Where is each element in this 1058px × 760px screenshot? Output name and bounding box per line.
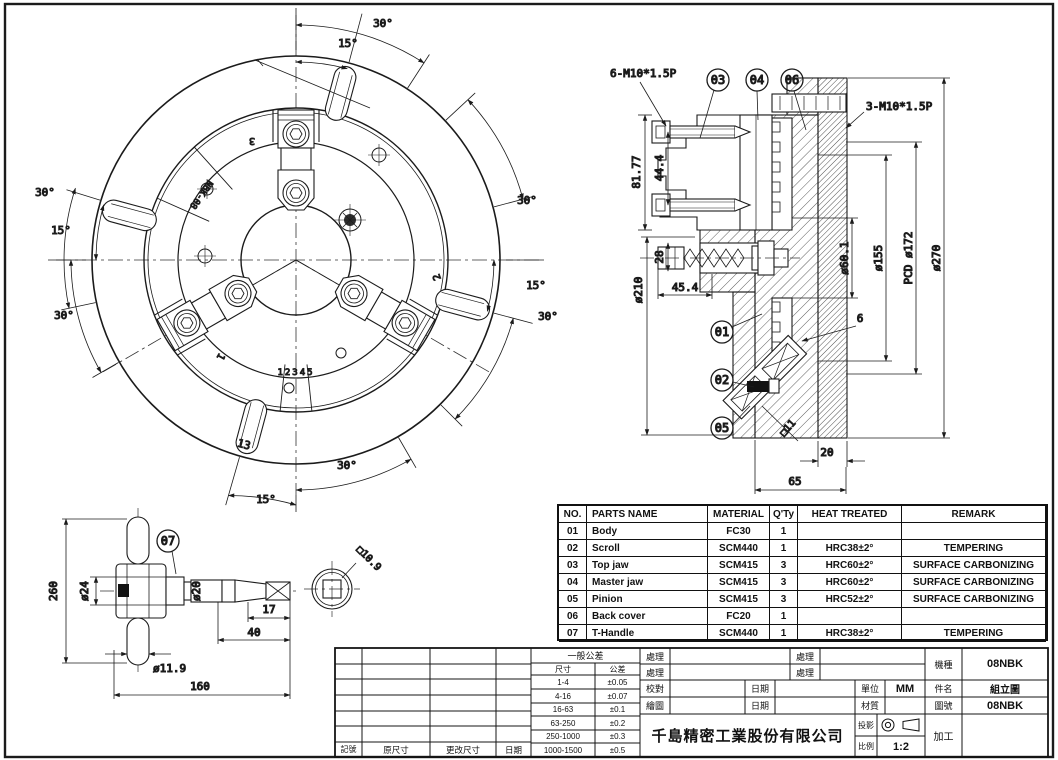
revision-original-label: 原尺寸 <box>362 742 430 757</box>
cell-remark: TEMPERING <box>902 625 1046 642</box>
tolerance-range: 1000-1500 <box>531 743 595 757</box>
balloon-01: 01 <box>715 325 729 339</box>
drawing-no-label: 圖號 <box>925 697 962 714</box>
cell-material: FC20 <box>708 608 770 625</box>
parts-table: NO. PARTS NAME MATERIAL Q'Ty HEAT TREATE… <box>557 504 1048 641</box>
projection-label: 投影 <box>855 714 877 736</box>
cell-remark: TEMPERING <box>902 540 1046 557</box>
cell-remark: SURFACE CARBONIZING <box>902 591 1046 608</box>
treatment-label-4: 處理 <box>790 664 820 680</box>
dim-tooth: 6 <box>857 312 864 325</box>
tolerance-value: ±0.1 <box>595 703 640 716</box>
drawing-no-value: 08NBK <box>962 697 1048 714</box>
pinion-socket <box>334 204 366 236</box>
cell-material: SCM440 <box>708 540 770 557</box>
dim-recess-dia: ø155 <box>872 245 885 272</box>
jaw-number-1: 1 <box>214 351 227 362</box>
col-header-heat: HEAT TREATED <box>798 506 902 523</box>
tolerance-range: 250-1000 <box>531 730 595 743</box>
col-header-no: NO. <box>559 506 587 523</box>
cell-no: 07 <box>559 625 587 642</box>
tolerance-value: ±0.2 <box>595 716 640 730</box>
item-label: 件名 <box>925 680 962 697</box>
balloon-04: 04 <box>750 73 764 87</box>
cell-remark: SURFACE CARBONIZING <box>902 574 1046 591</box>
dim-top-30: 30° <box>373 17 393 30</box>
square-end-view <box>312 563 356 609</box>
front-centerlines <box>56 15 540 495</box>
dim-left-30-upper: 30° <box>35 186 55 199</box>
dim-outer-dia: ø270 <box>930 245 943 272</box>
tolerance-value: ±0.3 <box>595 730 640 743</box>
cell-qty: 3 <box>770 574 798 591</box>
treatment-label-2: 處理 <box>640 664 670 680</box>
unit-label: 單位 <box>855 680 885 697</box>
dim-bore-dia: ø60.1 <box>838 241 851 274</box>
jaw-number-3: 3 <box>249 135 255 146</box>
tolerance-title: 一般公差 <box>531 648 640 663</box>
first-angle-projection-icon <box>879 717 923 733</box>
tolerance-range: 63-250 <box>531 716 595 730</box>
date-label-1: 日期 <box>745 680 775 697</box>
cell-name: T-Handle <box>587 625 708 642</box>
col-header-remark: REMARK <box>902 506 1046 523</box>
tolerance-dim-header: 尺寸 <box>531 663 595 675</box>
sheet-border <box>5 4 1053 757</box>
check-label: 校對 <box>640 680 670 697</box>
dim-bottom-15: 15° <box>256 493 276 506</box>
cell-qty: 3 <box>770 591 798 608</box>
cell-heat: HRC60±2° <box>798 557 902 574</box>
balloon-02: 02 <box>715 373 729 387</box>
dim-tip-len: 17 <box>262 603 275 616</box>
dim-left-30-lower: 30° <box>54 309 74 322</box>
unit-value: MM <box>885 680 925 697</box>
revision-changed-label: 更改尺寸 <box>430 742 496 757</box>
cell-remark <box>902 608 1046 625</box>
projection-symbol-cell <box>877 714 925 736</box>
section-view: 03 04 06 01 02 05 6-M10*1.5P 3-M10*1.5P <box>610 67 950 494</box>
cell-qty: 1 <box>770 608 798 625</box>
dim-handle-length: 260 <box>47 581 60 601</box>
dim-back-thickness: 20 <box>820 446 833 459</box>
note-front-bolts: 6-M10*1.5P <box>610 67 677 80</box>
cell-remark <box>902 523 1046 540</box>
balloon-05: 05 <box>715 421 729 435</box>
dim-jaw-height: 81.77 <box>630 155 643 188</box>
cell-no: 03 <box>559 557 587 574</box>
tolerance-range: 1-4 <box>531 675 595 689</box>
note-back-bolts: 3-M10*1.5P <box>866 100 933 113</box>
dim-end-len: 40 <box>247 626 260 639</box>
cell-material: SCM415 <box>708 557 770 574</box>
dim-shaft-dia: ø20 <box>190 581 203 601</box>
cell-name: Master jaw <box>587 574 708 591</box>
back-tapped-hole <box>772 94 846 112</box>
revision-date-label: 日期 <box>496 742 531 757</box>
cell-material: SCM440 <box>708 625 770 642</box>
dim-right-15: 15° <box>526 279 546 292</box>
treatment-label-3: 處理 <box>790 648 820 664</box>
date-label-2: 日期 <box>745 697 775 714</box>
cell-remark: SURFACE CARBONIZING <box>902 557 1046 574</box>
cell-no: 01 <box>559 523 587 540</box>
cell-no: 02 <box>559 540 587 557</box>
dim-square-size: □10.9 <box>354 544 383 573</box>
cell-qty: 1 <box>770 540 798 557</box>
cell-qty: 1 <box>770 625 798 642</box>
balloon-06: 06 <box>785 73 799 87</box>
cell-name: Top jaw <box>587 557 708 574</box>
tolerance-range: 16-63 <box>531 703 595 716</box>
drawing-sheet: NBK-08 12345 3 1 2 <box>0 0 1058 760</box>
tolerance-value: ±0.5 <box>595 743 640 757</box>
dim-bolt-span: 44.4 <box>653 154 666 181</box>
cell-name: Pinion <box>587 591 708 608</box>
dim-bar-dia: ø11.9 <box>153 662 186 675</box>
dim-hub-dia: ø24 <box>78 581 91 601</box>
col-header-name: PARTS NAME <box>587 506 708 523</box>
dim-left-15: 15° <box>51 224 71 237</box>
cell-no: 05 <box>559 591 587 608</box>
tolerance-range: 4-16 <box>531 689 595 703</box>
cell-material: SCM415 <box>708 574 770 591</box>
scale-label: 比例 <box>855 736 877 757</box>
material-label: 材質 <box>855 697 885 714</box>
revision-mark-label: 記號 <box>335 742 362 757</box>
col-header-qty: Q'Ty <box>770 506 798 523</box>
cell-material: SCM415 <box>708 591 770 608</box>
front-view: NBK-08 12345 3 1 2 <box>35 8 558 512</box>
jaw-number-2: 2 <box>431 272 443 281</box>
cell-heat: HRC60±2° <box>798 574 902 591</box>
material-value <box>885 697 925 714</box>
balloon-03: 03 <box>711 73 725 87</box>
col-header-material: MATERIAL <box>708 506 770 523</box>
cell-no: 06 <box>559 608 587 625</box>
cell-heat <box>798 523 902 540</box>
cell-name: Back cover <box>587 608 708 625</box>
cell-material: FC30 <box>708 523 770 540</box>
dim-boss-len: 45.4 <box>672 281 699 294</box>
company-name: 千島精密工業股份有限公司 <box>640 714 855 757</box>
model-label: 機種 <box>925 648 962 680</box>
tolerance-tol-header: 公差 <box>595 663 640 675</box>
cell-heat: HRC38±2° <box>798 540 902 557</box>
drawing-canvas: NBK-08 12345 3 1 2 <box>0 0 1058 760</box>
model-value: 08NBK <box>962 648 1048 680</box>
cell-heat: HRC38±2° <box>798 625 902 642</box>
cell-no: 04 <box>559 574 587 591</box>
cell-heat: HRC52±2° <box>798 591 902 608</box>
dim-right-30-upper: 30° <box>517 194 537 207</box>
cell-name: Scroll <box>587 540 708 557</box>
dim-top-15: 15° <box>338 37 358 50</box>
cell-name: Body <box>587 523 708 540</box>
process-label: 加工 <box>925 714 962 757</box>
t-handle-body <box>116 517 290 665</box>
scale-value: 1:2 <box>877 736 925 757</box>
tolerance-value: ±0.05 <box>595 675 640 689</box>
dim-bottom-30: 30° <box>337 459 357 472</box>
graduation-text: 12345 <box>277 368 314 378</box>
tolerance-value: ±0.07 <box>595 689 640 703</box>
cell-qty: 3 <box>770 557 798 574</box>
dim-total-thickness: 65 <box>788 475 801 488</box>
dim-total-len: 160 <box>190 680 210 693</box>
dim-right-30-lower: 30° <box>538 310 558 323</box>
treatment-label-1: 處理 <box>640 648 670 664</box>
item-value: 組立圖 <box>962 680 1048 697</box>
cell-heat <box>798 608 902 625</box>
dim-socket-span: 28 <box>653 250 666 263</box>
balloon-07: 07 <box>161 534 175 548</box>
dim-pcd: PCD ø172 <box>902 232 915 285</box>
cell-qty: 1 <box>770 523 798 540</box>
t-handle-view: 07 260 ø24 ø20 17 40 ø11.9 160 □10.9 <box>47 508 383 699</box>
drawn-label: 繪圖 <box>640 697 670 714</box>
dim-body-dia: ø210 <box>632 277 645 304</box>
